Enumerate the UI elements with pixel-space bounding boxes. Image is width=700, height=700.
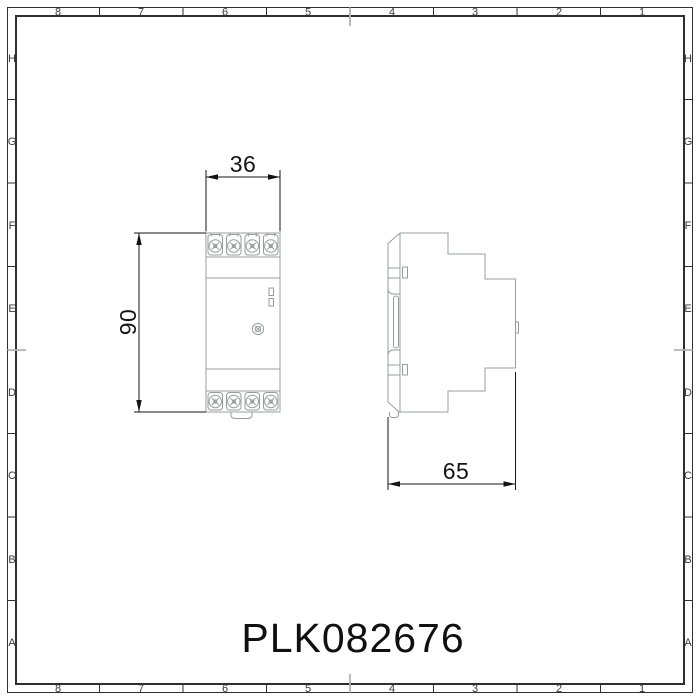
terminal-bottom-2 bbox=[227, 393, 242, 411]
side-body-outline bbox=[399, 233, 516, 412]
dimensions bbox=[134, 170, 516, 490]
col-label-bottom-7: 2 bbox=[556, 683, 562, 695]
row-label-left-H: H bbox=[8, 53, 16, 65]
row-label-right-A: A bbox=[684, 637, 692, 649]
col-label-top-8: 1 bbox=[639, 7, 645, 19]
part-number-title: PLK082676 bbox=[241, 615, 464, 661]
col-label-top-5: 4 bbox=[389, 7, 395, 19]
dimension-texts: 36 90 65 bbox=[115, 151, 469, 484]
row-label-left-F: F bbox=[9, 220, 16, 232]
col-label-top-6: 3 bbox=[472, 7, 478, 19]
row-label-right-F: F bbox=[685, 220, 692, 232]
frame-labels: 8 7 6 5 4 3 2 1 8 7 6 5 4 3 2 1 H G F E … bbox=[8, 7, 693, 696]
sheet-center-marks bbox=[8, 8, 693, 693]
row-label-left-G: G bbox=[8, 136, 17, 148]
frame-outer-border bbox=[8, 8, 693, 693]
row-label-left-C: C bbox=[8, 470, 16, 482]
row-label-right-H: H bbox=[684, 53, 692, 65]
row-label-left-E: E bbox=[8, 303, 15, 315]
side-back-chamfer-bottom bbox=[388, 402, 399, 412]
row-label-left-A: A bbox=[8, 637, 16, 649]
col-label-bottom-5: 4 bbox=[389, 683, 395, 695]
dim-width-value: 36 bbox=[230, 151, 257, 177]
row-label-right-G: G bbox=[684, 136, 693, 148]
adjustment-screw bbox=[252, 323, 263, 334]
terminal-bottom-4 bbox=[264, 393, 279, 411]
col-label-top-2: 7 bbox=[138, 7, 144, 19]
col-label-top-4: 5 bbox=[305, 7, 311, 19]
col-label-top-3: 6 bbox=[222, 7, 228, 19]
row-label-right-D: D bbox=[684, 387, 692, 399]
frame-inner-border bbox=[16, 16, 684, 684]
dim-height bbox=[134, 233, 206, 412]
technical-drawing: 8 7 6 5 4 3 2 1 8 7 6 5 4 3 2 1 H G F E … bbox=[0, 0, 700, 700]
led-indicator-2 bbox=[269, 299, 274, 307]
col-label-bottom-2: 7 bbox=[138, 683, 144, 695]
rail-lip-bottom bbox=[403, 365, 408, 376]
front-body-outline bbox=[206, 233, 280, 412]
front-view bbox=[206, 233, 280, 419]
terminal-bottom-3 bbox=[245, 393, 260, 411]
led-indicator-1 bbox=[269, 288, 274, 296]
row-label-right-B: B bbox=[684, 554, 691, 566]
dim-arrowheads bbox=[136, 174, 515, 486]
col-label-bottom-6: 3 bbox=[472, 683, 478, 695]
side-view bbox=[388, 233, 519, 418]
din-clip-tab-side bbox=[390, 412, 399, 418]
row-label-left-B: B bbox=[8, 554, 15, 566]
col-label-top-7: 2 bbox=[556, 7, 562, 19]
terminal-top-2 bbox=[227, 233, 242, 255]
side-back-chamfer-top bbox=[388, 233, 400, 244]
row-label-left-D: D bbox=[8, 387, 16, 399]
terminal-top-4 bbox=[264, 233, 279, 255]
terminal-bottom-1 bbox=[208, 393, 223, 411]
din-clip-tab-front bbox=[231, 412, 252, 419]
row-label-right-C: C bbox=[684, 470, 692, 482]
dim-height-value: 90 bbox=[115, 309, 141, 336]
drawing-sheet: 8 7 6 5 4 3 2 1 8 7 6 5 4 3 2 1 H G F E … bbox=[0, 0, 700, 700]
col-label-bottom-3: 6 bbox=[222, 683, 228, 695]
dim-depth-value: 65 bbox=[443, 458, 470, 484]
row-label-right-E: E bbox=[684, 303, 691, 315]
rail-hook-top bbox=[388, 278, 400, 294]
terminal-top-3 bbox=[245, 233, 260, 255]
clip-spring-slot bbox=[394, 296, 399, 348]
col-label-top-1: 8 bbox=[55, 7, 61, 19]
rail-hook-bottom bbox=[388, 350, 400, 365]
rail-lip-top bbox=[403, 267, 408, 278]
terminal-top-1 bbox=[208, 233, 223, 255]
col-label-bottom-1: 8 bbox=[55, 683, 61, 695]
col-label-bottom-4: 5 bbox=[305, 683, 311, 695]
col-label-bottom-8: 1 bbox=[639, 683, 645, 695]
sheet-frame bbox=[8, 8, 693, 693]
